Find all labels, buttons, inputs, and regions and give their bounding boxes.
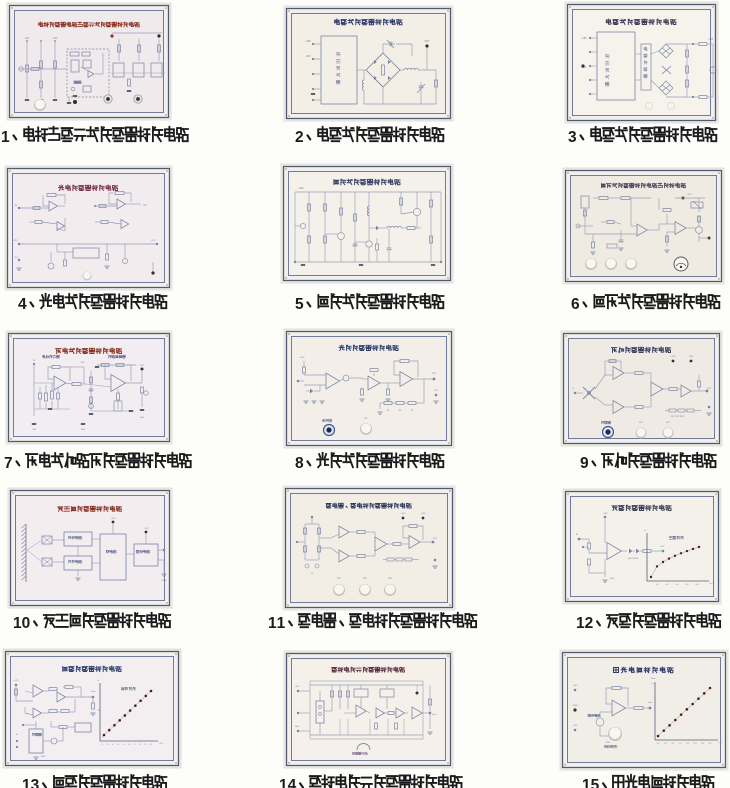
svg-text:+15V: +15V — [581, 38, 587, 40]
svg-text:5: 5 — [591, 777, 600, 788]
svg-text:GND: GND — [573, 705, 578, 707]
svg-text:1200: 1200 — [693, 743, 697, 745]
svg-text:200: 200 — [657, 743, 660, 745]
svg-text:800: 800 — [686, 584, 689, 586]
svg-text:+15V: +15V — [305, 40, 311, 43]
svg-text:9: 9 — [580, 455, 589, 472]
svg-text:GND: GND — [610, 578, 615, 580]
svg-text:+15V: +15V — [80, 362, 85, 364]
svg-text:2: 2 — [585, 615, 594, 632]
svg-text:4: 4 — [18, 296, 27, 313]
svg-text:GND: GND — [41, 756, 46, 758]
svg-text:+15V: +15V — [299, 357, 305, 359]
svg-text:-15V: -15V — [32, 429, 37, 431]
svg-text:+12V: +12V — [12, 240, 18, 242]
svg-text:3: 3 — [31, 777, 40, 788]
svg-text:-12V: -12V — [151, 240, 156, 242]
svg-text:4: 4 — [288, 777, 297, 788]
svg-text:600: 600 — [671, 743, 674, 745]
svg-text:40: 40 — [117, 744, 119, 746]
svg-text:1000: 1000 — [695, 584, 699, 586]
svg-text:+15V: +15V — [572, 685, 578, 687]
svg-text:7: 7 — [4, 455, 13, 472]
svg-text:Vout: Vout — [91, 690, 96, 693]
svg-text:GND: GND — [140, 417, 145, 419]
svg-text:RP1 RP2 RP3: RP1 RP2 RP3 — [671, 416, 685, 418]
svg-text:(Rs): (Rs) — [709, 583, 713, 585]
svg-text:6: 6 — [571, 296, 580, 313]
svg-text:OUT: OUT — [424, 40, 430, 43]
svg-text:90: 90 — [144, 744, 146, 746]
svg-text:+12V: +12V — [686, 194, 692, 196]
svg-text:GND: GND — [295, 726, 300, 728]
svg-text:400: 400 — [666, 584, 669, 586]
svg-text:-15V: -15V — [421, 513, 426, 515]
svg-text:1000: 1000 — [686, 743, 690, 745]
svg-text:2: 2 — [295, 129, 304, 146]
svg-text:100: 100 — [149, 744, 152, 746]
svg-text:-15V: -15V — [573, 725, 578, 727]
svg-text:(Lux): (Lux) — [718, 742, 722, 744]
svg-text:+12V: +12V — [660, 546, 665, 548]
svg-text:-15V: -15V — [434, 390, 439, 392]
svg-text:Vout: Vout — [432, 713, 437, 716]
svg-text:50: 50 — [123, 744, 125, 746]
svg-text:GND: GND — [162, 580, 167, 582]
svg-text:GND: GND — [606, 742, 611, 744]
svg-text:0: 0 — [22, 615, 31, 632]
svg-text:1: 1 — [1, 129, 10, 146]
svg-text:800: 800 — [679, 743, 682, 745]
svg-text:OUT: OUT — [707, 388, 712, 390]
svg-text:LED1 LED2: LED1 LED2 — [628, 558, 639, 560]
svg-text:3: 3 — [568, 129, 577, 146]
svg-text:20: 20 — [106, 744, 108, 746]
svg-text:+2V: +2V — [25, 36, 30, 40]
svg-text:400: 400 — [664, 743, 667, 745]
svg-text:GND: GND — [81, 429, 86, 431]
svg-text:200: 200 — [656, 584, 659, 586]
svg-text:8: 8 — [295, 455, 304, 472]
svg-text:-5V: -5V — [14, 257, 18, 259]
svg-text:Vout: Vout — [651, 677, 656, 680]
svg-text:OUT: OUT — [433, 538, 438, 540]
svg-text:30: 30 — [112, 744, 114, 746]
svg-text:-15V: -15V — [305, 55, 310, 58]
svg-text:+12V: +12V — [13, 680, 19, 682]
svg-text:Vout: Vout — [648, 701, 653, 704]
svg-text:OUT: OUT — [143, 205, 148, 207]
svg-text:OUT: OUT — [709, 39, 714, 41]
svg-text:1400: 1400 — [701, 743, 705, 745]
svg-text:OUT: OUT — [432, 373, 437, 375]
svg-text:1: 1 — [277, 615, 286, 632]
svg-text:+2V: +2V — [53, 36, 58, 40]
svg-text:60: 60 — [128, 744, 130, 746]
svg-text:TC: TC — [311, 573, 314, 575]
svg-text:+15V: +15V — [670, 356, 676, 358]
svg-text:600: 600 — [676, 584, 679, 586]
svg-text:+12V: +12V — [143, 528, 149, 530]
svg-text:+15V: +15V — [298, 188, 304, 190]
svg-text:+15V: +15V — [602, 513, 608, 515]
svg-text:5: 5 — [295, 296, 304, 313]
svg-text:70: 70 — [133, 744, 135, 746]
svg-text:10: 10 — [101, 744, 103, 746]
svg-text:-15V: -15V — [689, 356, 694, 358]
svg-text:80: 80 — [139, 744, 141, 746]
svg-text:+12V: +12V — [295, 686, 301, 688]
svg-text:1600: 1600 — [708, 743, 712, 745]
svg-text:(mv): (mv) — [651, 683, 655, 685]
svg-text:+12V: +12V — [110, 518, 116, 520]
svg-text:+15V: +15V — [400, 513, 406, 515]
